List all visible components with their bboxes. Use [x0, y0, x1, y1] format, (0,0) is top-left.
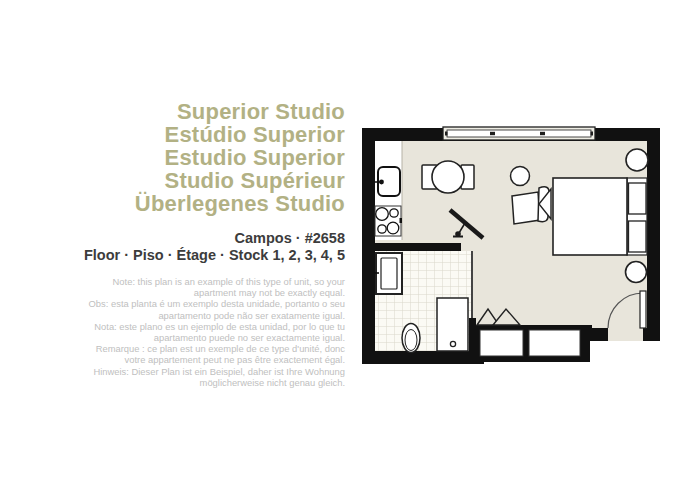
side-table-icon [511, 167, 530, 186]
unit-floors: Floor · Piso · Étage · Stock 1, 2, 3, 4,… [30, 247, 345, 264]
bathroom-vanity-icon [373, 253, 402, 294]
shower-icon [437, 298, 468, 351]
kitchen-sink-icon [375, 167, 400, 196]
disclaimer-line: apartment may not be exactly equal. [30, 287, 345, 298]
pillow-icon [629, 183, 647, 214]
disclaimer-line: apartamento puede no ser exactamente igu… [30, 332, 345, 343]
toilet-icon [402, 324, 420, 353]
nightstand-icon [626, 149, 648, 171]
title-portuguese: Estúdio Superior [30, 123, 345, 146]
disclaimer: Note: this plan is an example of this ty… [30, 276, 345, 388]
dining-table-icon [432, 161, 464, 193]
closet-niche [480, 330, 523, 356]
disclaimer-line: apartamento pode não ser exatamente igua… [30, 310, 345, 321]
title-spanish: Estudio Superior [30, 146, 345, 169]
disclaimer-line: möglicherweise nicht genau gleich. [30, 377, 345, 388]
unit-location-number: Campos · #2658 [30, 230, 345, 247]
disclaimer-line: Remarque : ce plan est un exemple de ce … [30, 343, 345, 354]
title-german: Überlegenes Studio [30, 192, 345, 215]
dining-set [422, 161, 474, 193]
disclaimer-line: Note: this plan is an example of this ty… [30, 276, 345, 287]
closet-niche [529, 330, 580, 356]
title-french: Studio Supérieur [30, 169, 345, 192]
nightstand-icon [626, 262, 647, 283]
disclaimer-line: Nota: este plano es un ejemplo de esta u… [30, 321, 345, 332]
pillow-icon [629, 221, 647, 252]
unit-info: Campos · #2658 Floor · Piso · Étage · St… [30, 230, 345, 264]
disclaimer-line: Hinweis: Dieser Plan ist ein Beispiel, d… [30, 366, 345, 377]
bed-icon [539, 178, 647, 255]
disclaimer-line: votre appartement peut ne pas être exact… [30, 354, 345, 365]
stove-icon [375, 206, 402, 236]
unit-title-multilingual: Superior Studio Estúdio Superior Estudio… [30, 100, 345, 215]
page: Superior Studio Estúdio Superior Estudio… [0, 0, 700, 500]
outside-notch [590, 341, 660, 368]
disclaimer-line: Obs: esta planta é um exemplo desta unid… [30, 298, 345, 309]
window-icon [443, 127, 595, 140]
floor-plan [362, 126, 660, 368]
title-english: Superior Studio [30, 100, 345, 123]
